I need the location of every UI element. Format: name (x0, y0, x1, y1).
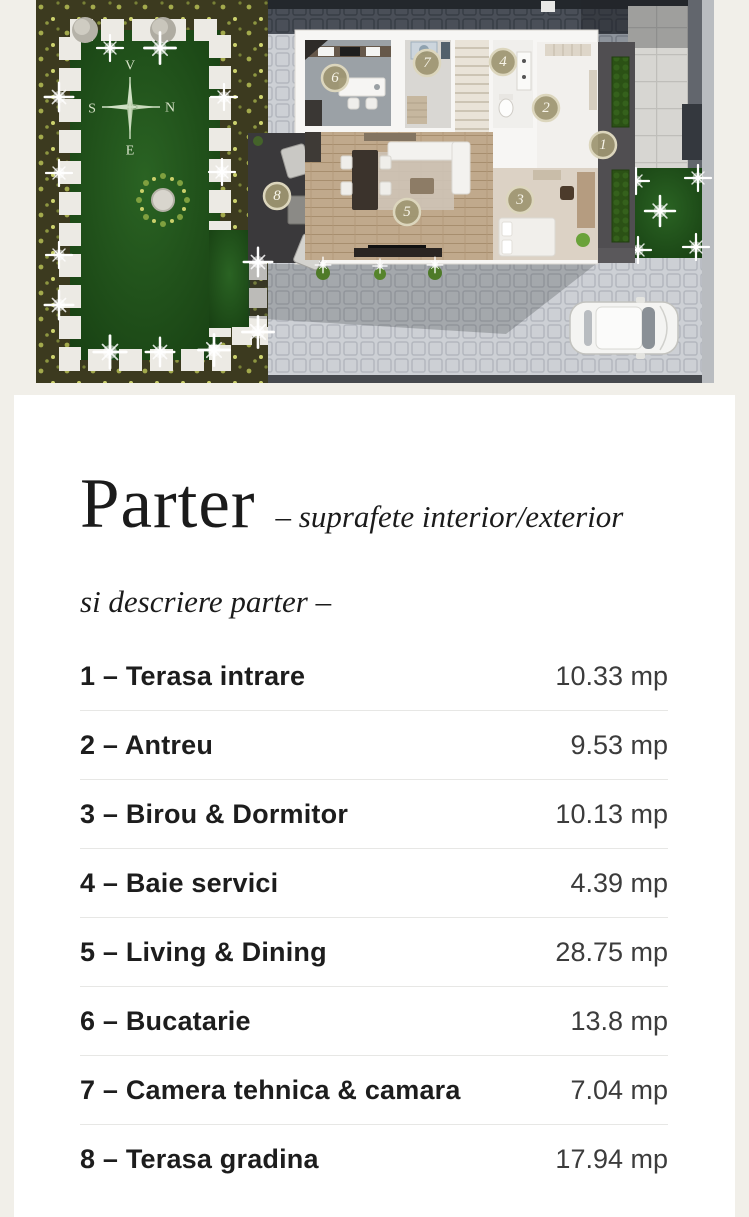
room-marker: 3 (507, 187, 533, 213)
svg-text:5: 5 (403, 204, 411, 220)
room-label: 1 – Terasa intrare (80, 661, 305, 692)
room-list: 1 – Terasa intrare 10.33 mp 2 – Antreu 9… (80, 642, 668, 1193)
room-label: 7 – Camera tehnica & camara (80, 1075, 461, 1106)
page-subtitle: – suprafete interior/exterior (276, 499, 624, 535)
room-area: 10.13 mp (555, 799, 668, 830)
room-area: 17.94 mp (555, 1144, 668, 1175)
room-marker: 6 (322, 65, 348, 91)
room-area: 4.39 mp (570, 868, 668, 899)
room-list-row: 3 – Birou & Dormitor 10.13 mp (80, 780, 668, 849)
room-marker: 4 (490, 49, 516, 75)
svg-text:E: E (126, 144, 135, 159)
room-area: 7.04 mp (570, 1075, 668, 1106)
room-label: 4 – Baie servici (80, 868, 278, 899)
room-list-row: 5 – Living & Dining 28.75 mp (80, 918, 668, 987)
room-list-row: 6 – Bucatarie 13.8 mp (80, 987, 668, 1056)
title-row: Parter – suprafete interior/exterior (80, 469, 668, 540)
svg-text:S: S (88, 102, 96, 117)
room-list-row: 8 – Terasa gradina 17.94 mp (80, 1125, 668, 1193)
room-list-row: 4 – Baie servici 4.39 mp (80, 849, 668, 918)
room-area: 28.75 mp (555, 937, 668, 968)
room-area: 10.33 mp (555, 661, 668, 692)
room-label: 3 – Birou & Dormitor (80, 799, 348, 830)
car (570, 297, 678, 359)
plan-bottom-edge (268, 375, 714, 383)
room-birou (493, 168, 598, 260)
room-marker: 8 (264, 183, 290, 209)
room-area: 13.8 mp (570, 1006, 668, 1037)
room-label: 6 – Bucatarie (80, 1006, 251, 1037)
svg-text:V: V (125, 59, 135, 74)
room-list-row: 7 – Camera tehnica & camara 7.04 mp (80, 1056, 668, 1125)
room-list-row: 2 – Antreu 9.53 mp (80, 711, 668, 780)
room-label: 5 – Living & Dining (80, 937, 327, 968)
svg-text:4: 4 (499, 54, 507, 70)
room-list-row: 1 – Terasa intrare 10.33 mp (80, 642, 668, 711)
room-living (305, 132, 493, 260)
room-marker: 2 (533, 95, 559, 121)
side-lawn (623, 165, 711, 263)
room-marker: 7 (414, 50, 440, 76)
house-floorplan (248, 30, 635, 271)
garden: V N S E (36, 0, 268, 383)
tagline: si descriere parter – (80, 584, 668, 620)
room-marker: 1 (590, 132, 616, 158)
floor-plan-image: V N S E (36, 0, 714, 383)
svg-text:1: 1 (599, 137, 607, 153)
svg-text:6: 6 (331, 70, 339, 86)
page-title: Parter (80, 469, 256, 540)
room-label: 2 – Antreu (80, 730, 213, 761)
svg-text:8: 8 (273, 188, 281, 204)
svg-text:3: 3 (515, 192, 524, 208)
room-label: 8 – Terasa gradina (80, 1144, 319, 1175)
room-marker: 5 (394, 199, 420, 225)
svg-text:2: 2 (542, 100, 550, 116)
room-area: 9.53 mp (570, 730, 668, 761)
parter-info-card: Parter – suprafete interior/exterior si … (14, 395, 735, 1217)
svg-text:N: N (165, 101, 175, 116)
